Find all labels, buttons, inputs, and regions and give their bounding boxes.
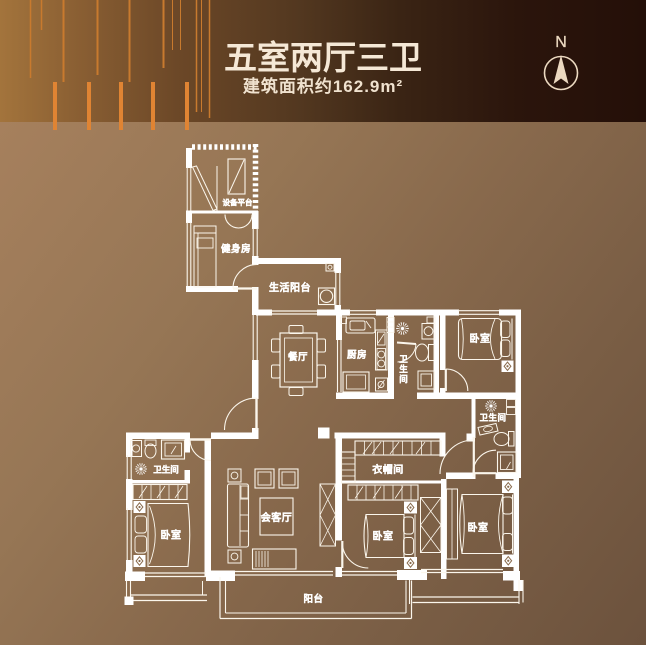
svg-text:卧室: 卧室 <box>470 332 491 345</box>
svg-text:厨房: 厨房 <box>347 349 367 361</box>
svg-text:餐厅: 餐厅 <box>287 351 308 363</box>
svg-text:会客厅: 会客厅 <box>261 511 293 524</box>
svg-text:健身房: 健身房 <box>221 243 251 255</box>
svg-text:设备平台: 设备平台 <box>223 197 253 207</box>
svg-text:卫生间: 卫生间 <box>479 413 506 423</box>
svg-text:卫生间: 卫生间 <box>399 354 408 384</box>
svg-text:卧室: 卧室 <box>468 521 489 534</box>
svg-text:阳台: 阳台 <box>303 593 323 605</box>
svg-text:生活阳台: 生活阳台 <box>269 281 311 294</box>
svg-text:衣帽间: 衣帽间 <box>372 463 404 476</box>
svg-text:卧室: 卧室 <box>373 530 394 543</box>
svg-text:卫生间: 卫生间 <box>153 465 179 475</box>
svg-text:卧室: 卧室 <box>161 529 182 542</box>
